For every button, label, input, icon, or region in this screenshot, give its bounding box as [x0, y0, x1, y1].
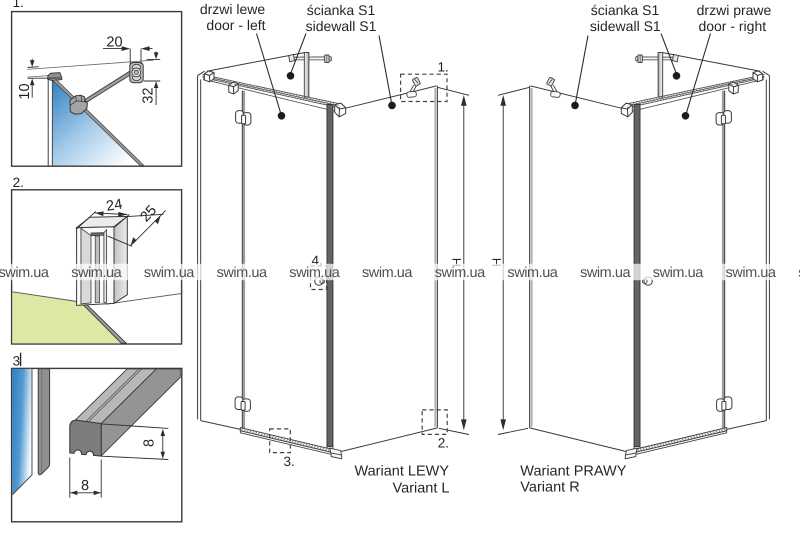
svg-text:swim.ua: swim.ua	[435, 265, 486, 281]
svg-text:sidewall S1: sidewall S1	[306, 18, 377, 34]
svg-text:swim.ua: swim.ua	[580, 265, 631, 281]
svg-text:32: 32	[141, 87, 157, 103]
svg-text:Variant L: Variant L	[393, 480, 450, 496]
svg-text:ścianka S1: ścianka S1	[307, 2, 376, 18]
svg-text:swim.ua: swim.ua	[217, 265, 268, 281]
svg-text:swim.ua: swim.ua	[507, 265, 558, 281]
svg-text:Variant R: Variant R	[520, 480, 579, 496]
svg-text:20: 20	[106, 35, 122, 51]
svg-text:door - left: door - left	[206, 17, 265, 33]
svg-text:sidewall S1: sidewall S1	[590, 18, 661, 34]
svg-text:swim.ua: swim.ua	[726, 265, 777, 281]
svg-text:swim.ua: swim.ua	[0, 265, 50, 281]
svg-text:door - right: door - right	[698, 18, 766, 34]
svg-text:1.: 1.	[13, 0, 24, 10]
svg-text:Wariant LEWY: Wariant LEWY	[354, 463, 449, 479]
svg-text:10: 10	[17, 83, 33, 99]
svg-text:2.: 2.	[13, 175, 24, 190]
svg-text:ścianka S1: ścianka S1	[591, 2, 660, 18]
svg-text:drzwi prawe: drzwi prawe	[697, 2, 772, 18]
svg-text:24: 24	[105, 196, 123, 214]
svg-text:drzwi lewe: drzwi lewe	[200, 1, 266, 17]
svg-text:Wariant PRAWY: Wariant PRAWY	[520, 464, 626, 480]
svg-text:swim.ua: swim.ua	[653, 265, 704, 281]
svg-text:8: 8	[81, 478, 89, 494]
svg-text:swim.ua: swim.ua	[362, 265, 413, 281]
svg-text:swim.ua: swim.ua	[144, 265, 195, 281]
svg-text:swim.ua: swim.ua	[289, 265, 340, 281]
svg-text:1.: 1.	[438, 60, 449, 75]
svg-text:swim.ua: swim.ua	[71, 265, 122, 281]
svg-text:3.: 3.	[284, 454, 295, 469]
svg-text:2.: 2.	[438, 436, 449, 451]
svg-text:3: 3	[13, 353, 21, 368]
svg-text:8: 8	[142, 439, 158, 447]
